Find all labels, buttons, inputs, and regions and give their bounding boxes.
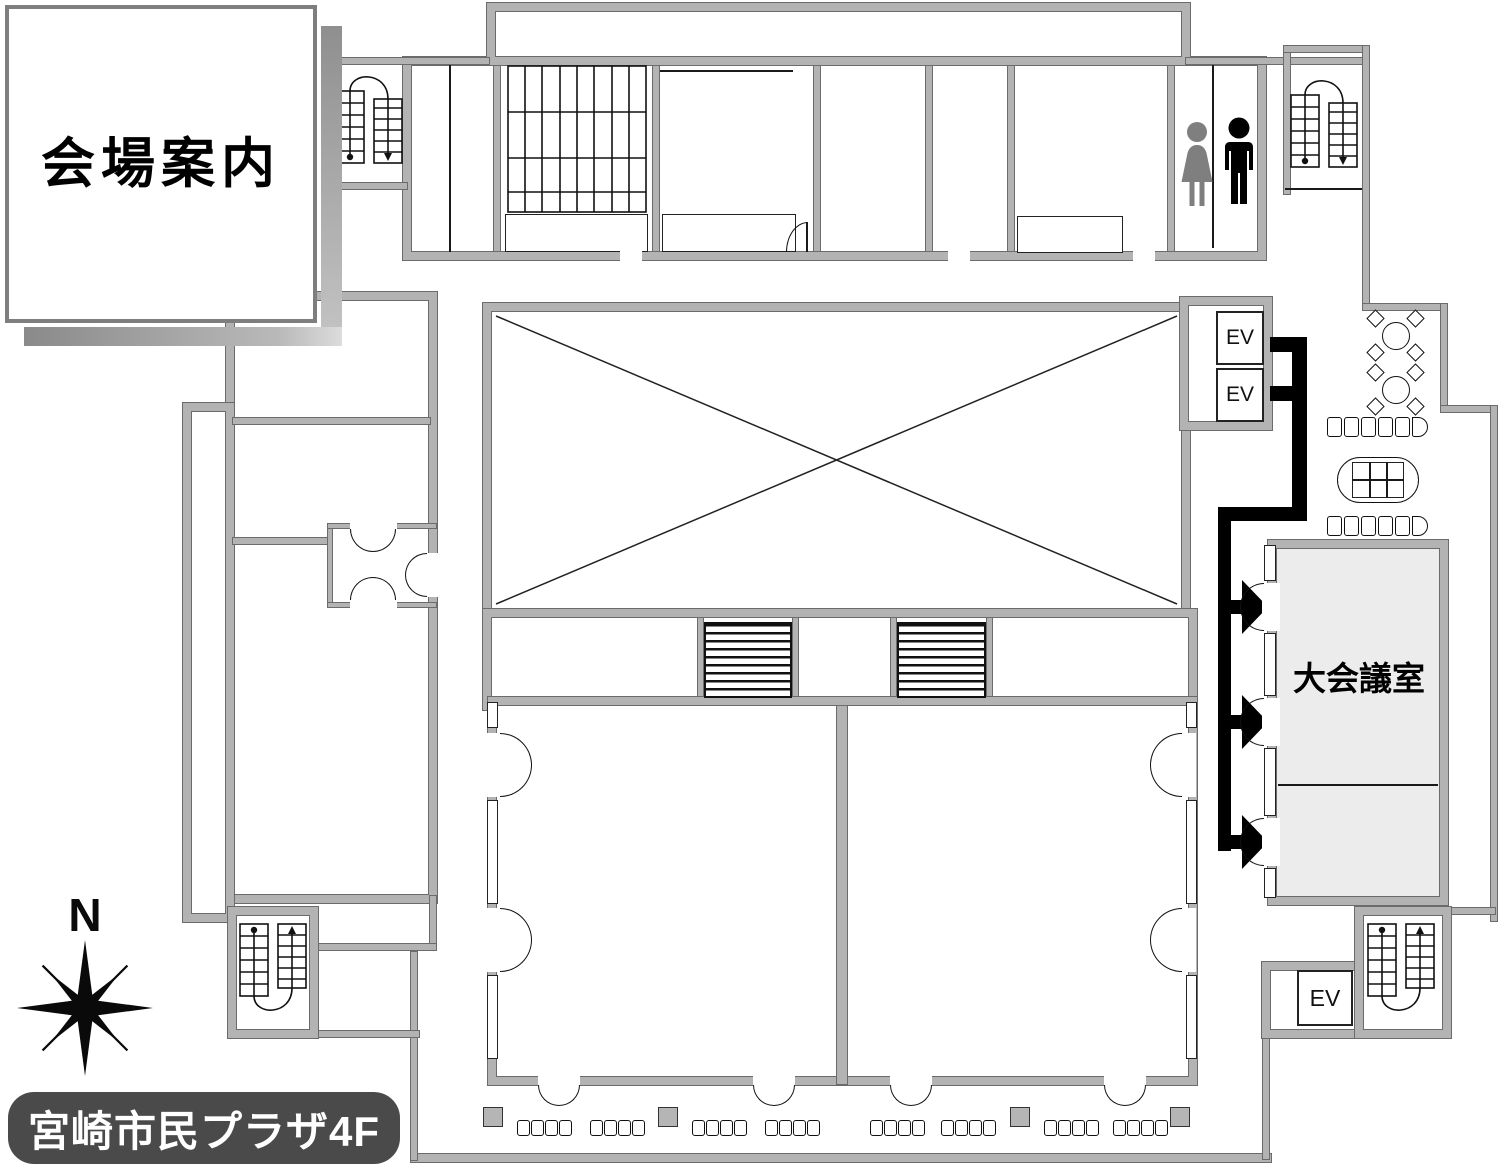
shape — [1289, 74, 1359, 169]
woman-icon — [1178, 120, 1216, 220]
chair-icon — [898, 1120, 911, 1136]
chair-icon — [559, 1120, 572, 1136]
planter-icon — [1170, 1107, 1190, 1127]
wall-segment — [925, 65, 933, 252]
wall-segment — [1167, 65, 1175, 252]
door-gap — [1180, 908, 1196, 972]
wall-segment — [813, 65, 821, 252]
door-gap — [1104, 1066, 1146, 1087]
wall-segment — [1440, 303, 1448, 413]
chair-icon — [1086, 1120, 1099, 1136]
escalator-hatch — [897, 622, 986, 698]
shape — [17, 940, 153, 1076]
wall-segment — [1490, 405, 1498, 922]
door-gap — [538, 1066, 580, 1087]
shape — [384, 153, 392, 161]
shape — [1368, 924, 1434, 1010]
door-swing-arc — [1104, 1085, 1125, 1106]
wall-segment — [232, 537, 333, 545]
sofa-seat-icon — [1327, 516, 1342, 536]
chair-icon — [807, 1120, 820, 1136]
elevator-label: EV — [1226, 383, 1254, 407]
shape — [347, 154, 353, 160]
chair-icon — [1366, 363, 1384, 381]
planter-icon — [1010, 1107, 1030, 1127]
wall-segment — [652, 65, 660, 252]
shape — [1366, 922, 1436, 1017]
route-path — [1292, 337, 1307, 521]
floor-label-badge: 宮崎市民プラザ4F — [8, 1092, 400, 1164]
wall-segment — [697, 617, 704, 702]
door-gap — [427, 553, 439, 597]
wall-segment — [890, 617, 897, 702]
west-corridor — [183, 403, 234, 922]
chair-icon — [1058, 1120, 1071, 1136]
shape — [17, 999, 153, 1017]
round-table — [1382, 322, 1410, 350]
route-path — [1218, 507, 1307, 521]
chair-icon — [1155, 1120, 1168, 1136]
door-gap — [890, 1066, 932, 1087]
shape — [350, 77, 388, 99]
planter-icon — [483, 1107, 503, 1127]
counter — [1017, 216, 1123, 253]
sofa-seat-icon — [1378, 417, 1393, 437]
chair-icon — [870, 1120, 883, 1136]
thin-line — [1369, 462, 1371, 498]
counter — [505, 214, 648, 252]
thin-line — [1278, 784, 1438, 786]
chair-icon — [1072, 1120, 1085, 1136]
shape — [508, 66, 646, 212]
chair-icon — [1113, 1120, 1126, 1136]
shape — [1187, 122, 1207, 142]
door-swing-arc — [538, 1085, 559, 1106]
chair-icon — [706, 1120, 719, 1136]
door-swing-arc — [911, 1085, 932, 1106]
conference-room — [1268, 540, 1448, 905]
floor-label-text: 宮崎市民プラザ4F — [28, 1098, 380, 1159]
round-table — [1382, 376, 1410, 404]
elevator-label: EV — [1226, 326, 1254, 350]
shape — [1182, 122, 1213, 206]
sofa-end-icon — [1412, 516, 1428, 536]
door-gap — [1262, 818, 1280, 866]
thin-line — [806, 222, 808, 252]
shape — [1382, 988, 1420, 1010]
route-path — [1218, 507, 1231, 851]
atrium-x — [483, 303, 1190, 617]
north-band — [487, 3, 1190, 65]
chair-icon — [1406, 363, 1424, 381]
door-swing-arc — [890, 1085, 911, 1106]
chair-icon — [955, 1120, 968, 1136]
fixture-outline — [1264, 868, 1276, 898]
shape — [1225, 118, 1253, 205]
shape — [1302, 158, 1308, 164]
chair-icon — [692, 1120, 705, 1136]
fixture-outline — [1186, 702, 1197, 728]
door-gap — [948, 251, 970, 261]
shape — [334, 70, 404, 165]
north-label: N — [48, 888, 122, 942]
sofa-end-icon — [1412, 417, 1428, 437]
shape — [1416, 926, 1424, 934]
sofa-seat-icon — [1361, 516, 1376, 536]
wall-segment — [232, 417, 431, 425]
door-gap — [350, 600, 397, 610]
chair-icon — [545, 1120, 558, 1136]
counter — [662, 214, 796, 252]
elevator: EV — [1216, 368, 1264, 422]
door-gap — [1180, 733, 1196, 797]
conference-room-label: 大会議室 — [1278, 652, 1440, 700]
shelf-grid — [507, 65, 647, 213]
wall-segment — [1007, 65, 1015, 252]
wall-segment — [330, 57, 490, 65]
shape — [288, 926, 296, 934]
chair-icon — [983, 1120, 996, 1136]
thin-line — [1352, 479, 1404, 481]
corridor-band — [483, 609, 1197, 710]
wall-segment — [493, 65, 501, 252]
sofa-seat-icon — [1395, 417, 1410, 437]
man-icon — [1219, 116, 1259, 216]
wall-segment — [792, 617, 799, 702]
fixture-outline — [487, 975, 498, 1059]
fixture-outline — [1264, 545, 1276, 581]
shape — [238, 922, 308, 1017]
stairs-icon — [238, 922, 308, 1017]
chair-icon — [1406, 397, 1424, 415]
chair-icon — [793, 1120, 806, 1136]
chair-icon — [941, 1120, 954, 1136]
sofa-seat-icon — [1344, 516, 1359, 536]
door-gap — [620, 251, 642, 261]
door-gap — [1262, 698, 1280, 746]
chair-icon — [590, 1120, 603, 1136]
stairs-icon — [1289, 74, 1359, 169]
shape — [251, 927, 257, 933]
chair-icon — [1366, 397, 1384, 415]
floor-plan: EV EV EV — [0, 0, 1500, 1166]
thin-line — [449, 65, 451, 252]
wall-segment — [1185, 57, 1370, 65]
sofa-seat-icon — [1361, 417, 1376, 437]
door-swing-arc — [753, 1085, 774, 1106]
compass-rose-icon — [15, 938, 155, 1078]
wall-segment — [410, 951, 418, 1161]
fixture-outline — [1264, 748, 1276, 816]
shape — [254, 988, 292, 1010]
chair-icon — [1141, 1120, 1154, 1136]
shape — [1182, 145, 1213, 206]
shape — [1339, 157, 1347, 165]
shape — [1225, 142, 1253, 204]
shape — [1291, 81, 1357, 167]
card-shadow — [24, 327, 342, 346]
chair-icon — [1127, 1120, 1140, 1136]
wall-segment — [1283, 45, 1370, 53]
stairs-icon — [334, 70, 404, 165]
door-gap — [1262, 583, 1280, 631]
door-swing-arc — [559, 1085, 580, 1106]
fixture-outline — [1186, 975, 1197, 1059]
elevator-label: EV — [1310, 985, 1341, 1012]
sofa-seat-icon — [1395, 516, 1410, 536]
door-gap — [753, 1066, 795, 1087]
escalator-hatch — [704, 622, 792, 698]
chair-icon — [618, 1120, 631, 1136]
wall-segment — [1362, 45, 1370, 311]
wall-segment — [327, 523, 333, 608]
chair-icon — [912, 1120, 925, 1136]
sofa-seat-icon — [1344, 417, 1359, 437]
fixture-outline — [487, 800, 498, 904]
chair-icon — [632, 1120, 645, 1136]
door-gap — [1133, 251, 1155, 261]
chair-icon — [720, 1120, 733, 1136]
wall-segment — [986, 617, 993, 702]
chair-icon — [1406, 343, 1424, 361]
door-swing-arc — [1125, 1085, 1146, 1106]
fixture-outline — [1264, 633, 1276, 696]
chair-icon — [884, 1120, 897, 1136]
thin-line — [1386, 462, 1388, 498]
fixture-outline — [487, 702, 498, 728]
sofa-seat-icon — [1327, 417, 1342, 437]
chair-icon — [517, 1120, 530, 1136]
hall-divider — [836, 705, 848, 1085]
shape — [1305, 81, 1343, 103]
stairs-icon — [1366, 922, 1436, 1017]
chair-icon — [734, 1120, 747, 1136]
elevator: EV — [1297, 970, 1353, 1026]
chair-icon — [1366, 309, 1384, 327]
title-card: 会場案内 — [5, 5, 317, 323]
chair-icon — [779, 1120, 792, 1136]
chair-icon — [1044, 1120, 1057, 1136]
shape — [336, 77, 402, 163]
wall-segment — [410, 1153, 1272, 1163]
fixture-outline — [1186, 800, 1197, 904]
sofa-seat-icon — [1378, 516, 1393, 536]
chair-icon — [765, 1120, 778, 1136]
chair-icon — [1366, 343, 1384, 361]
shape — [240, 924, 306, 1010]
card-shadow — [321, 26, 342, 343]
wall-segment — [1262, 1038, 1270, 1160]
door-swing-arc — [774, 1085, 795, 1106]
elevator: EV — [1216, 311, 1264, 365]
shape — [1379, 927, 1385, 933]
planter-icon — [658, 1107, 678, 1127]
thin-line — [1285, 188, 1370, 190]
page-title: 会場案内 — [41, 119, 281, 198]
shape — [525, 66, 629, 212]
chair-icon — [969, 1120, 982, 1136]
wall-segment — [312, 943, 437, 951]
chair-icon — [604, 1120, 617, 1136]
shape — [1229, 118, 1250, 139]
chair-icon — [1406, 309, 1424, 327]
thin-line — [660, 70, 793, 72]
chair-icon — [531, 1120, 544, 1136]
